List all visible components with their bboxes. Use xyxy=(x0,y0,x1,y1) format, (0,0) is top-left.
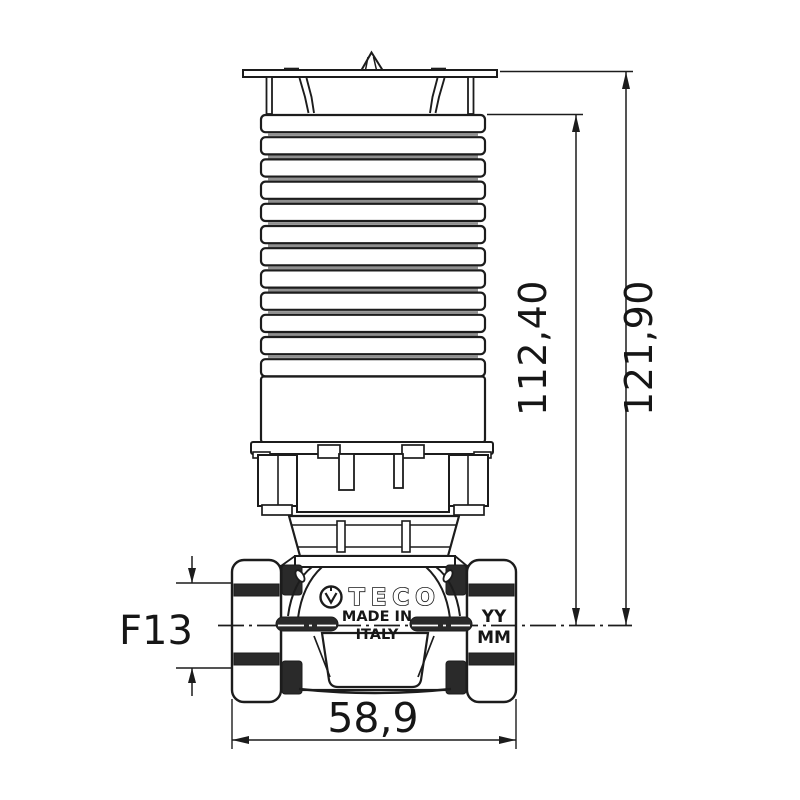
arrowhead-up-icon xyxy=(188,668,196,683)
fin-rib xyxy=(261,159,485,176)
cap-right-wall xyxy=(468,77,474,114)
collar-slot-left xyxy=(337,521,345,552)
body-width-label: 58,9 xyxy=(327,694,418,742)
valve-adapter xyxy=(258,445,488,515)
hex-right-band-bottom xyxy=(469,653,514,665)
dimension-actuator-height: 112,40 xyxy=(487,115,583,626)
hex-right-band-top xyxy=(469,584,514,596)
adapter-foot-right xyxy=(454,505,484,515)
adapter-tab-left xyxy=(318,445,340,458)
port-size-label: F13 xyxy=(119,608,193,654)
arrowhead-down-icon xyxy=(572,608,580,625)
cap-left-spring-clip xyxy=(300,78,315,113)
fin-gap-shade xyxy=(268,267,478,269)
teco-logo-icon xyxy=(321,587,342,608)
waterway-bar-left xyxy=(276,617,338,631)
fin-rib xyxy=(261,115,485,132)
dimension-body-width: 58,9 xyxy=(232,694,516,749)
fin-rib xyxy=(261,137,485,154)
fin-gap-shade xyxy=(268,311,478,313)
adapter-tab-right xyxy=(402,445,424,458)
actuator-base xyxy=(251,377,493,459)
fin-rib xyxy=(261,337,485,354)
arrowhead-left-icon xyxy=(232,736,249,744)
fin-rib xyxy=(261,359,485,376)
hex-fitting-left xyxy=(232,560,281,702)
date-code-yy: YY xyxy=(481,607,507,627)
actuator-cap xyxy=(243,53,497,115)
arrowhead-down-icon xyxy=(622,608,630,625)
cap-right-spring-clip xyxy=(430,78,445,113)
actuator-flange xyxy=(251,442,493,454)
fin-rib xyxy=(261,204,485,221)
cap-left-wall xyxy=(267,77,273,114)
adapter-prong-right xyxy=(394,454,403,488)
fin-rib xyxy=(261,226,485,243)
collar-outline xyxy=(289,516,459,556)
overall-height-label: 121,90 xyxy=(617,280,661,416)
technical-drawing-canvas: TECO MADE IN ITALY YY MM 121,90 112,40 F… xyxy=(0,0,800,800)
cap-plate xyxy=(243,70,497,77)
valve-top-bar xyxy=(295,556,455,567)
dimension-port-size: F13 xyxy=(119,556,233,696)
fin-gap-shade xyxy=(268,178,478,180)
teco-logotype: TECO xyxy=(349,585,441,611)
made-in-label: MADE IN xyxy=(342,609,412,625)
adapter-foot-left xyxy=(262,505,292,515)
fin-rib xyxy=(261,182,485,199)
arrowhead-down-icon xyxy=(188,568,196,583)
adapter-housing xyxy=(297,454,449,512)
fin-rib xyxy=(261,248,485,265)
adapter-prong-left xyxy=(339,454,354,490)
hex-left-band-bottom xyxy=(234,653,279,665)
date-code-mm: MM xyxy=(477,628,511,648)
cap-center-clip xyxy=(362,53,383,71)
fin-rib xyxy=(261,315,485,332)
arrowhead-right-icon xyxy=(499,736,516,744)
fin-gap-shade xyxy=(268,222,478,224)
actuator-height-label: 112,40 xyxy=(511,280,555,416)
fin-rib xyxy=(261,293,485,310)
waterway-bar-right xyxy=(410,617,472,631)
actuator-lower-shell xyxy=(261,377,485,443)
fin-gap-shade xyxy=(268,134,478,136)
collar-slot-right xyxy=(402,521,410,552)
hex-left-band-top xyxy=(234,584,279,596)
italy-label: ITALY xyxy=(356,627,399,643)
arrowhead-up-icon xyxy=(572,115,580,132)
fin-rib xyxy=(261,270,485,287)
collar-ring-nut xyxy=(289,516,459,556)
fin-gap-shade xyxy=(268,356,478,358)
arrowhead-up-icon xyxy=(622,72,630,89)
